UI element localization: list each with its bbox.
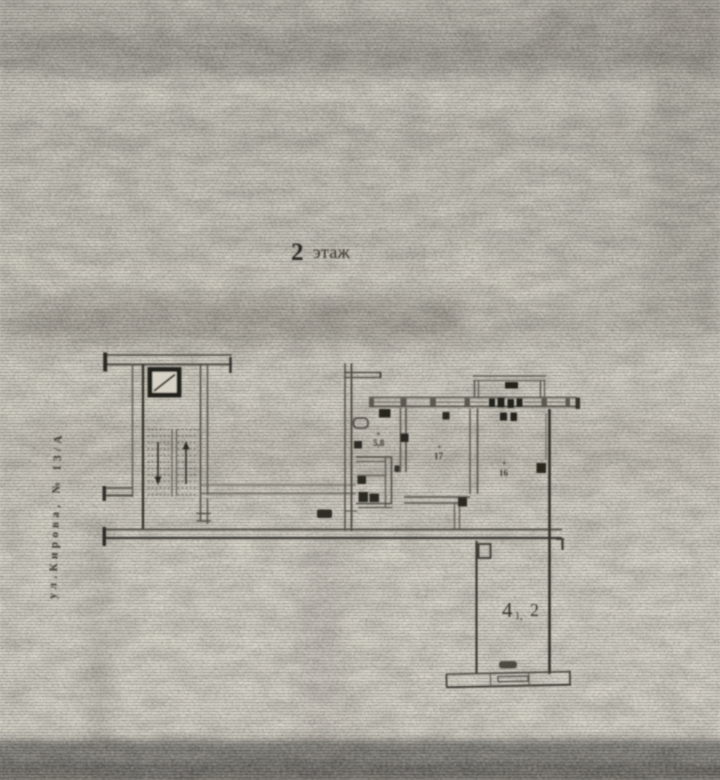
svg-text:17: 17	[434, 451, 444, 461]
svg-text:16: 16	[499, 468, 509, 478]
svg-text:1,: 1,	[515, 611, 523, 622]
svg-text:этаж: этаж	[313, 242, 350, 262]
svg-text:2: 2	[291, 239, 304, 266]
svg-text:+: +	[502, 459, 507, 468]
svg-text:2: 2	[530, 600, 539, 620]
svg-text:4: 4	[502, 598, 513, 622]
svg-text:5,8: 5,8	[373, 438, 385, 448]
